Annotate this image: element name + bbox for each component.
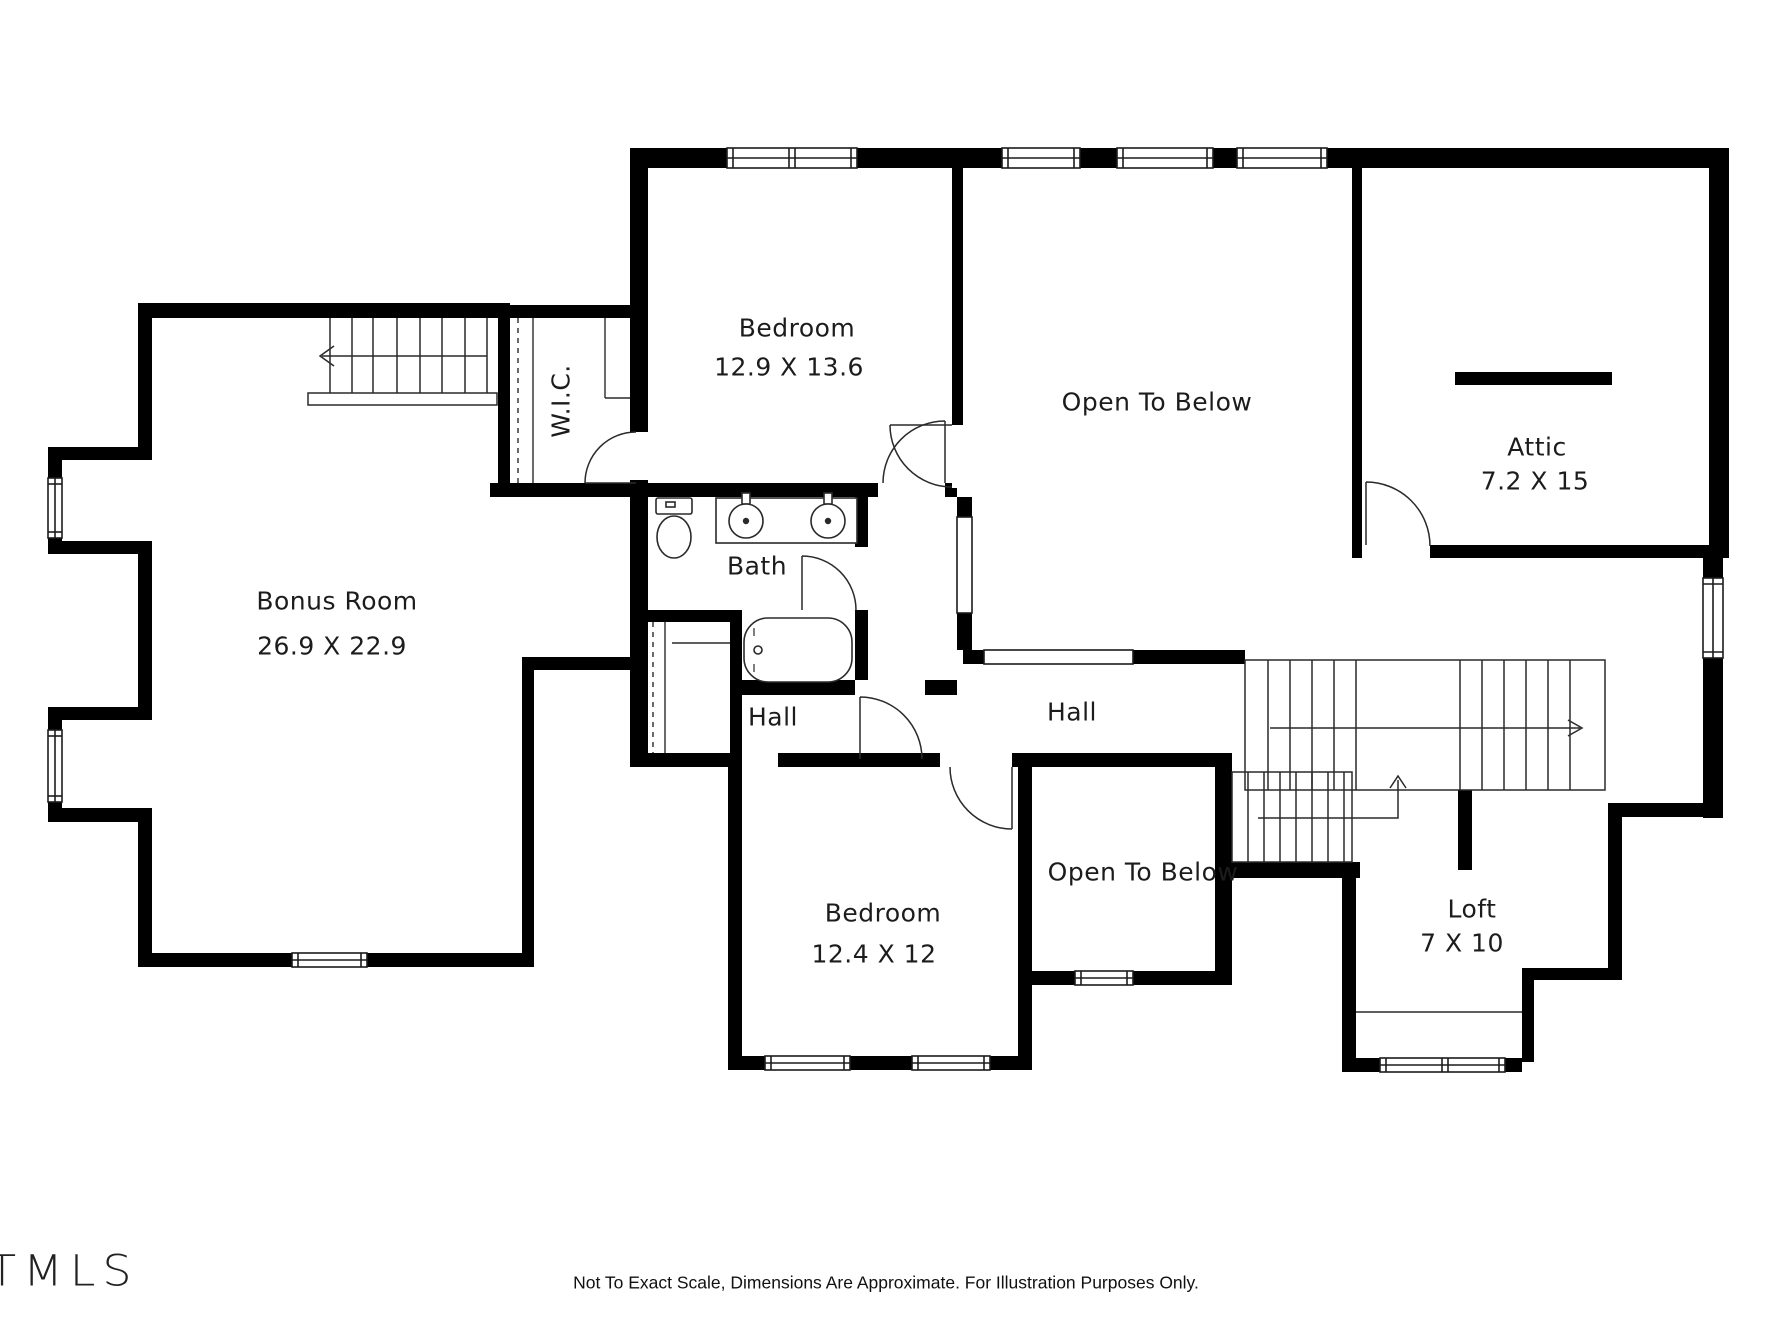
room-dims-bedroom-bottom: 12.4 X 12 [812,940,937,969]
door-arc [1366,482,1430,546]
window [1380,1058,1505,1072]
window [1075,971,1133,985]
fixtures [656,493,857,682]
room-label-hall-small: Hall [748,703,798,732]
window [1002,148,1080,168]
room-label-loft: Loft [1448,895,1497,924]
door-arc [950,767,1012,829]
window [727,148,857,168]
door-arc [802,556,856,610]
stairs-lower [1232,772,1406,862]
room-dims-bonus-room: 26.9 X 22.9 [257,632,407,661]
floor-plan-page: Bedroom 12.9 X 13.6 Open To Below Attic … [0,0,1773,1330]
room-dims-loft: 7 X 10 [1420,929,1504,958]
room-label-attic: Attic [1507,433,1566,462]
room-label-open-to-below-top: Open To Below [1062,388,1253,417]
room-label-bedroom-bottom: Bedroom [825,899,942,928]
room-label-open-to-below-bottom: Open To Below [1048,858,1239,887]
vanity-double-sink [716,493,857,543]
room-dims-bedroom-top: 12.9 X 13.6 [714,353,864,382]
room-label-wic: W.I.C. [547,364,576,438]
door-arc [890,425,952,487]
doors [585,421,1430,829]
stairs-bonus-room [308,318,497,405]
room-dims-attic: 7.2 X 15 [1481,467,1590,496]
room-label-bedroom-top: Bedroom [739,314,856,343]
window [48,730,62,802]
window [1237,148,1327,168]
window [1117,148,1213,168]
disclaimer-text: Not To Exact Scale, Dimensions Are Appro… [573,1273,1199,1294]
window [48,478,62,538]
room-label-bonus-room: Bonus Room [256,587,417,616]
door-arc [860,697,922,759]
window [912,1056,990,1070]
window [292,953,367,967]
railing [957,517,1133,664]
toilet [656,498,692,558]
room-label-bath: Bath [727,552,787,581]
window [1703,578,1723,658]
door-arc [585,432,636,483]
window [765,1056,850,1070]
room-label-hall-main: Hall [1047,698,1097,727]
floor-plan-drawing [0,0,1773,1330]
bathtub [744,618,852,682]
stairs-upper [1245,660,1605,790]
tmls-logo: TMLS [0,1246,139,1296]
